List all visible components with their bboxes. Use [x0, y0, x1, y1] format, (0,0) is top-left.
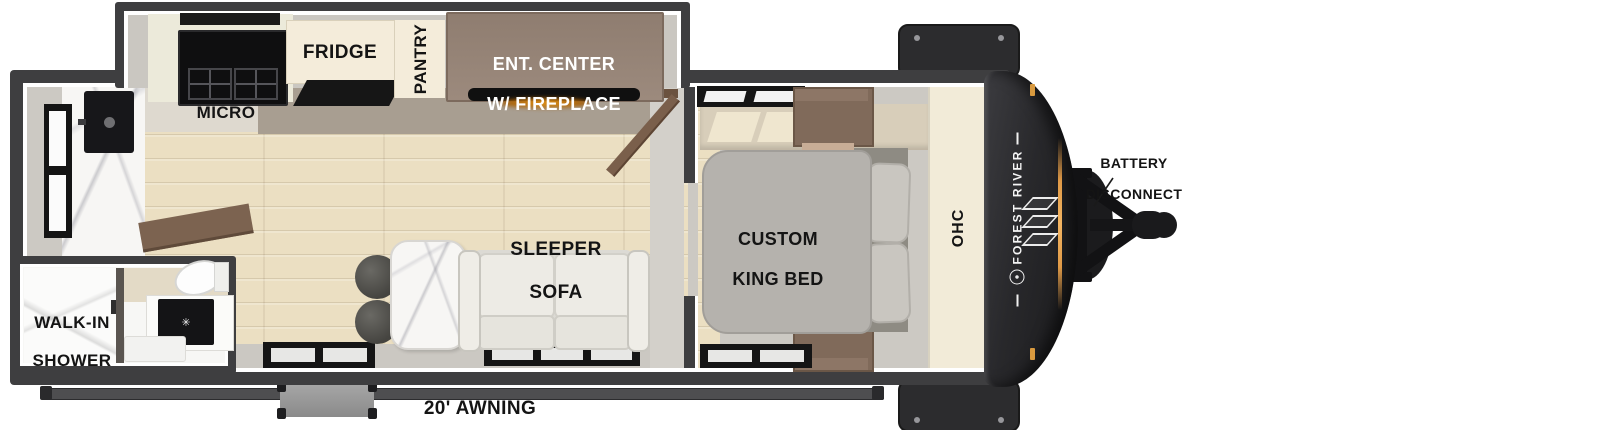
- kitchen-window: [44, 104, 72, 238]
- awning-label: 20' AWNING: [400, 398, 560, 419]
- battery-disconnect-label-line1: BATTERY: [1078, 156, 1190, 171]
- window: [700, 344, 812, 368]
- faucet-handle-icon: [78, 119, 86, 125]
- cooktop: [178, 30, 288, 106]
- battery-disconnect-label: BATTERY DISCONNECT: [1078, 141, 1190, 218]
- skylight-pane: [704, 91, 747, 102]
- slide-window: [180, 13, 280, 25]
- window: [263, 342, 375, 368]
- drain-icon: ✳: [181, 316, 190, 329]
- forest-river-logo: FOREST RIVER: [1009, 140, 1024, 312]
- logo-dash-icon: [1016, 295, 1018, 307]
- sofa-arm: [627, 250, 650, 352]
- step-leg: [277, 408, 286, 419]
- king-bed-label: CUSTOM KING BED: [712, 209, 844, 310]
- wardrobe: [793, 87, 874, 147]
- rivet-icon: [914, 417, 920, 423]
- floorplan-canvas: ✳ FOREST RIVER MICRO FRIDGE PANTRY ENT. …: [0, 0, 1600, 430]
- rivet-icon: [914, 35, 920, 41]
- amber-light-strip: [1058, 138, 1062, 310]
- burner-grate-icon: [188, 68, 232, 100]
- bedroom-partition-wall: [684, 296, 698, 368]
- front-storage-box-bottom: [898, 380, 1020, 430]
- pantry-label: PANTRY: [411, 20, 429, 98]
- burner-grate-icon: [234, 68, 278, 100]
- king-bed-label-line1: CUSTOM: [712, 229, 844, 249]
- forest-river-emblem-icon: [1010, 270, 1025, 285]
- awning-bar-endcap-right: [872, 386, 884, 400]
- window-mullion: [315, 342, 323, 368]
- bedroom-skylight: [697, 86, 805, 107]
- dinette-table: [390, 240, 466, 350]
- ent-center-label-line2: W/ FIREPLACE: [452, 94, 656, 114]
- faucet-icon: [104, 117, 115, 128]
- ent-center-label: ENT. CENTER W/ FIREPLACE: [452, 34, 656, 135]
- entry-step: [280, 383, 374, 417]
- king-bed-label-line2: KING BED: [712, 269, 844, 289]
- wardrobe-top-band: [795, 89, 868, 101]
- window-mullion: [752, 344, 760, 368]
- battery-disconnect-label-line2: DISCONNECT: [1078, 187, 1190, 202]
- fridge-shadow: [293, 80, 403, 106]
- marker-light-icon: [1030, 348, 1035, 360]
- rivet-icon: [998, 417, 1004, 423]
- walk-in-shower-label-line2: SHOWER: [24, 351, 120, 370]
- walk-in-shower-label: WALK-IN SHOWER: [24, 294, 120, 389]
- sleeper-sofa-label-line2: SOFA: [486, 282, 626, 303]
- step-leg: [368, 408, 377, 419]
- toilet-tank: [214, 262, 229, 292]
- wall-window: [707, 112, 761, 142]
- kitchen-sink: [84, 91, 134, 153]
- window-pane: [49, 175, 66, 231]
- sleeper-sofa-label-line1: SLEEPER: [486, 239, 626, 260]
- sofa-arm: [458, 250, 481, 352]
- ent-center-label-line1: ENT. CENTER: [452, 54, 656, 74]
- skylight-pane: [754, 91, 797, 102]
- rivet-icon: [998, 35, 1004, 41]
- sleeper-sofa-label: SLEEPER SOFA: [486, 218, 626, 324]
- logo-slashes-icon: [1027, 197, 1053, 251]
- logo-dash-icon: [1016, 132, 1018, 144]
- window-pane: [49, 111, 66, 166]
- bedroom-partition-wall: [684, 87, 698, 183]
- bath-mat: [124, 336, 186, 362]
- micro-label: MICRO: [178, 103, 274, 122]
- fridge-label: FRIDGE: [286, 42, 394, 63]
- marker-light-icon: [1030, 84, 1035, 96]
- ohc-label: OHC: [950, 198, 968, 258]
- walk-in-shower-label-line1: WALK-IN: [24, 313, 120, 332]
